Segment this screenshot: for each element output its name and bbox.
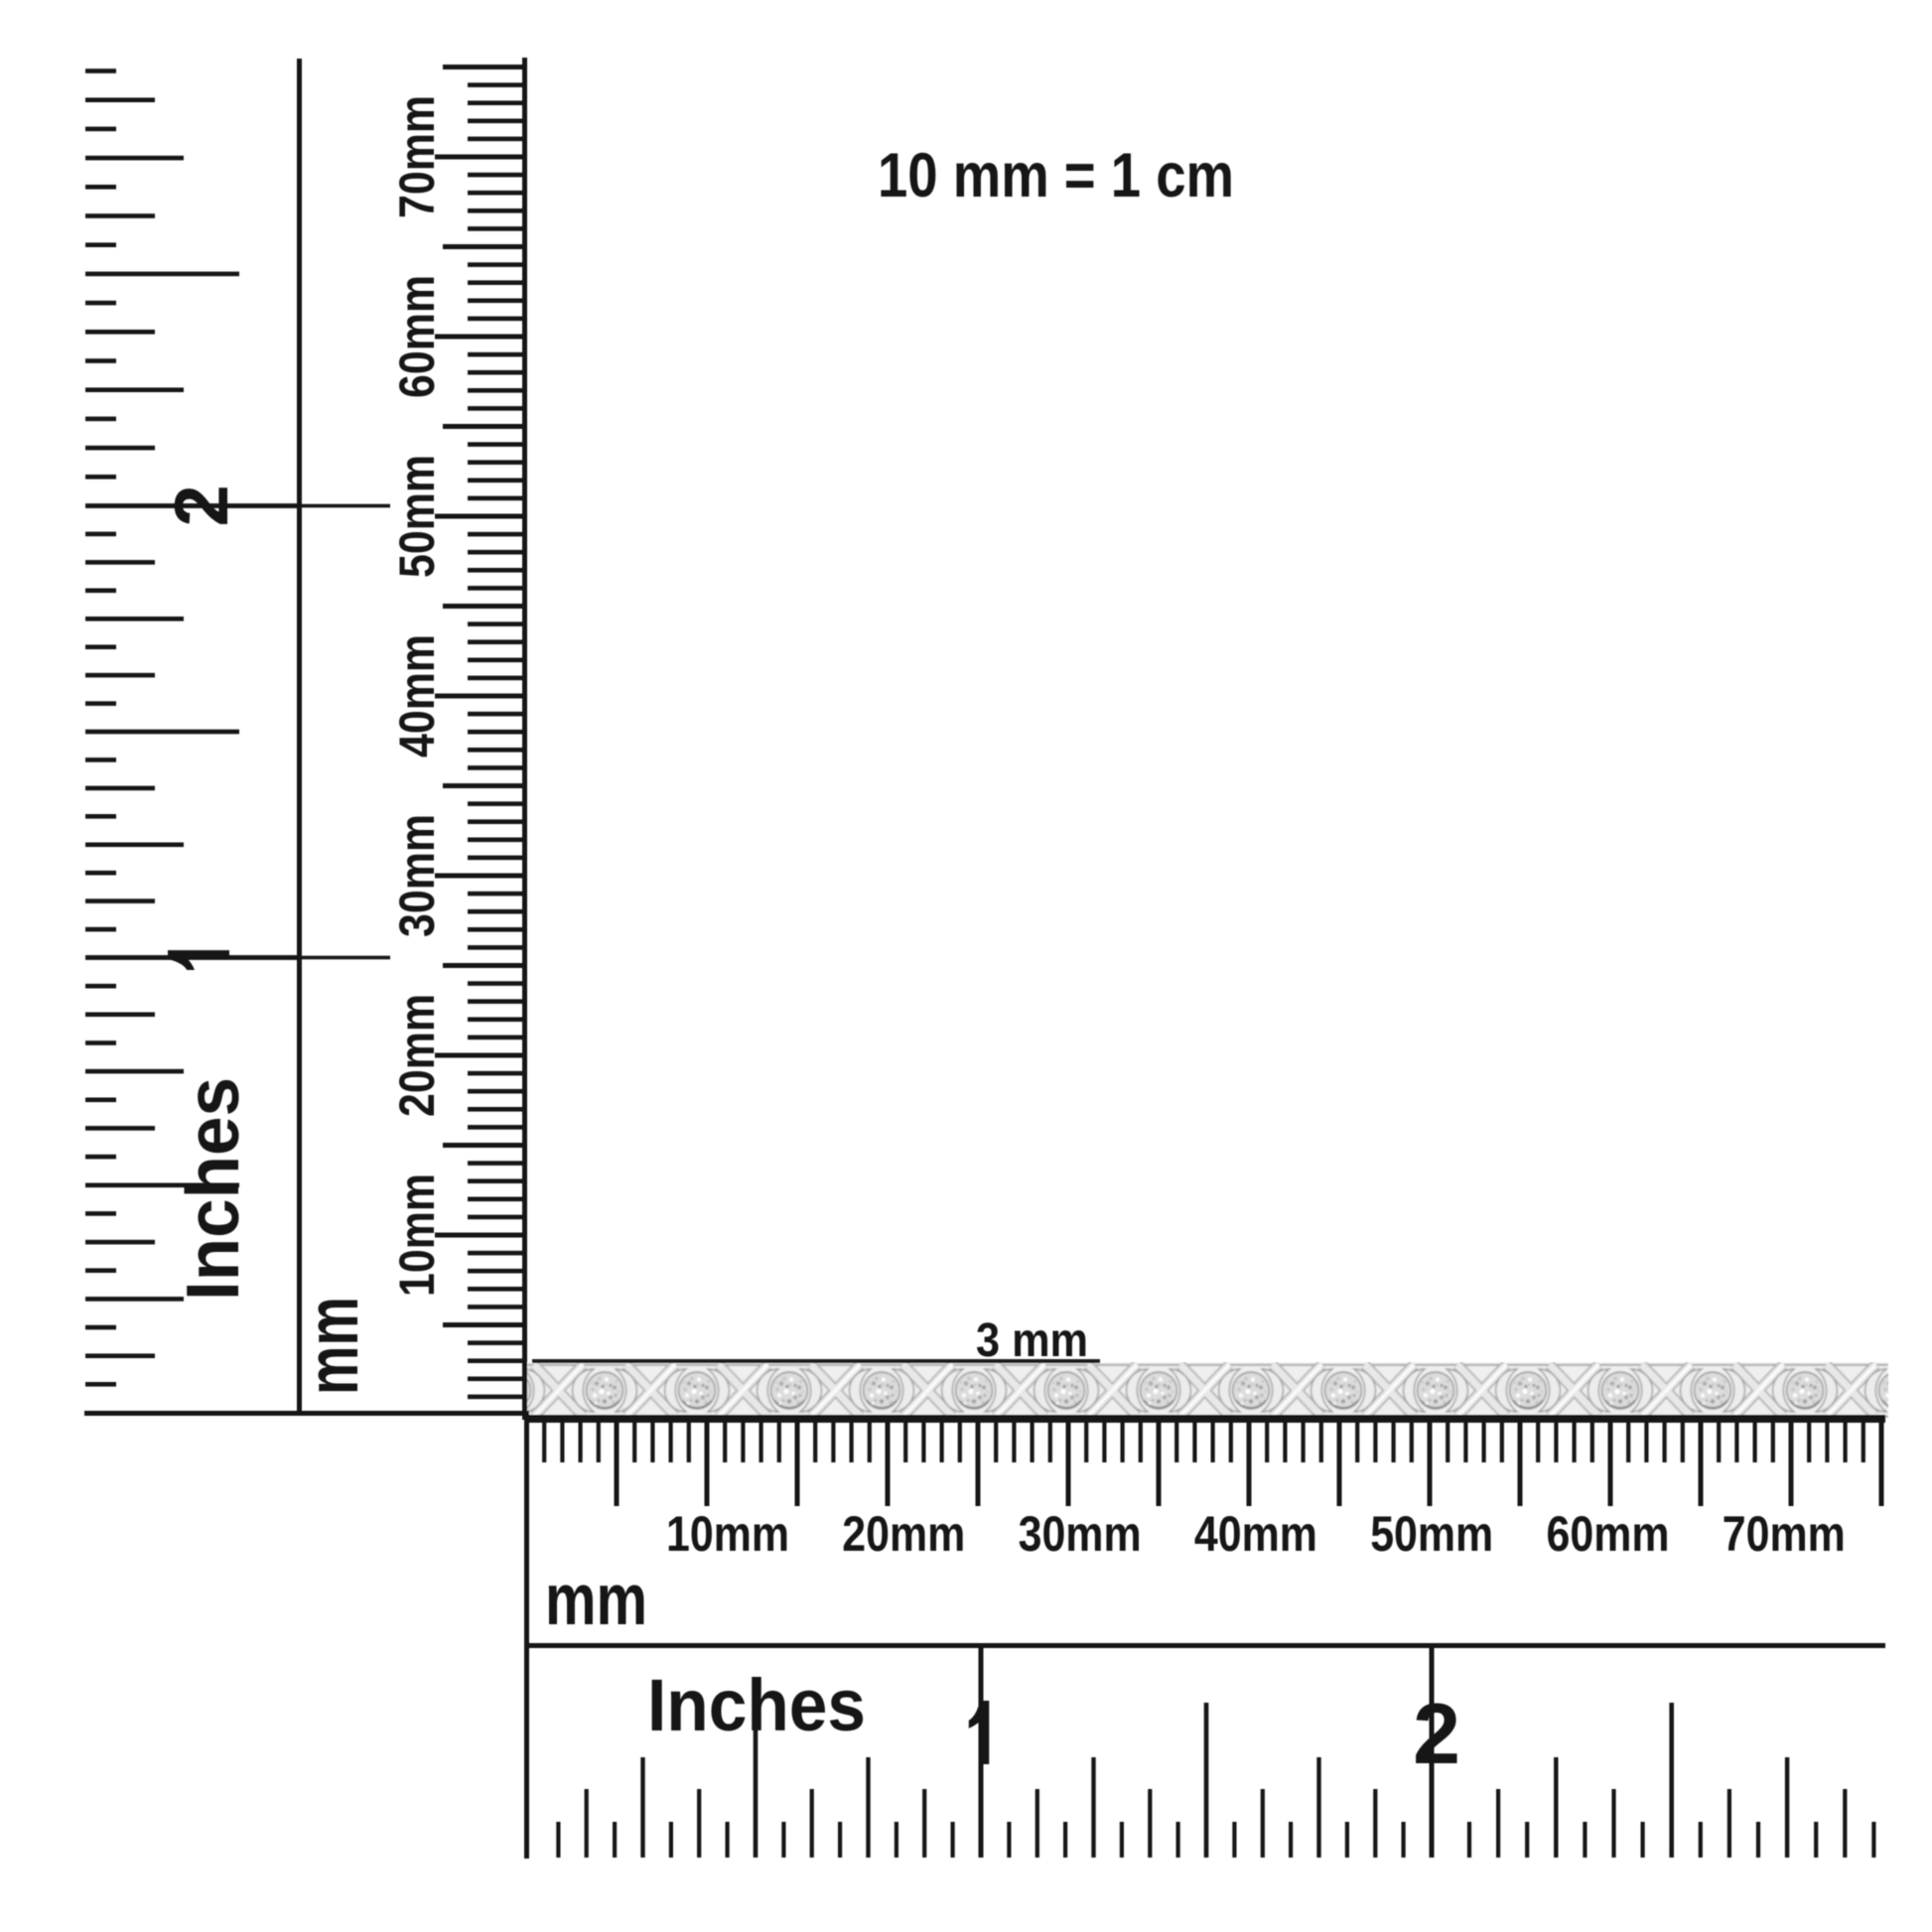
svg-text:30mm: 30mm <box>1019 1506 1142 1562</box>
svg-text:30mm: 30mm <box>389 814 445 937</box>
svg-text:20mm: 20mm <box>842 1506 965 1562</box>
svg-text:mm: mm <box>293 1297 373 1395</box>
svg-text:60mm: 60mm <box>1547 1506 1670 1562</box>
svg-text:40mm: 40mm <box>1194 1506 1317 1562</box>
svg-text:10mm: 10mm <box>666 1506 789 1562</box>
svg-text:3 mm: 3 mm <box>976 1314 1088 1367</box>
svg-text:40mm: 40mm <box>389 634 445 758</box>
svg-text:20mm: 20mm <box>389 994 445 1117</box>
svg-text:2: 2 <box>160 484 244 526</box>
svg-text:50mm: 50mm <box>389 455 445 578</box>
svg-text:10mm: 10mm <box>389 1173 445 1297</box>
svg-text:60mm: 60mm <box>389 275 445 398</box>
svg-text:2: 2 <box>1413 1687 1460 1782</box>
svg-text:mm: mm <box>545 1560 647 1640</box>
svg-text:Inches: Inches <box>647 1664 866 1746</box>
svg-text:70mm: 70mm <box>1723 1506 1846 1562</box>
svg-text:70mm: 70mm <box>389 95 445 218</box>
svg-text:50mm: 50mm <box>1370 1506 1493 1562</box>
svg-text:10 mm = 1 cm: 10 mm = 1 cm <box>878 141 1234 210</box>
svg-text:Inches: Inches <box>171 1077 254 1301</box>
